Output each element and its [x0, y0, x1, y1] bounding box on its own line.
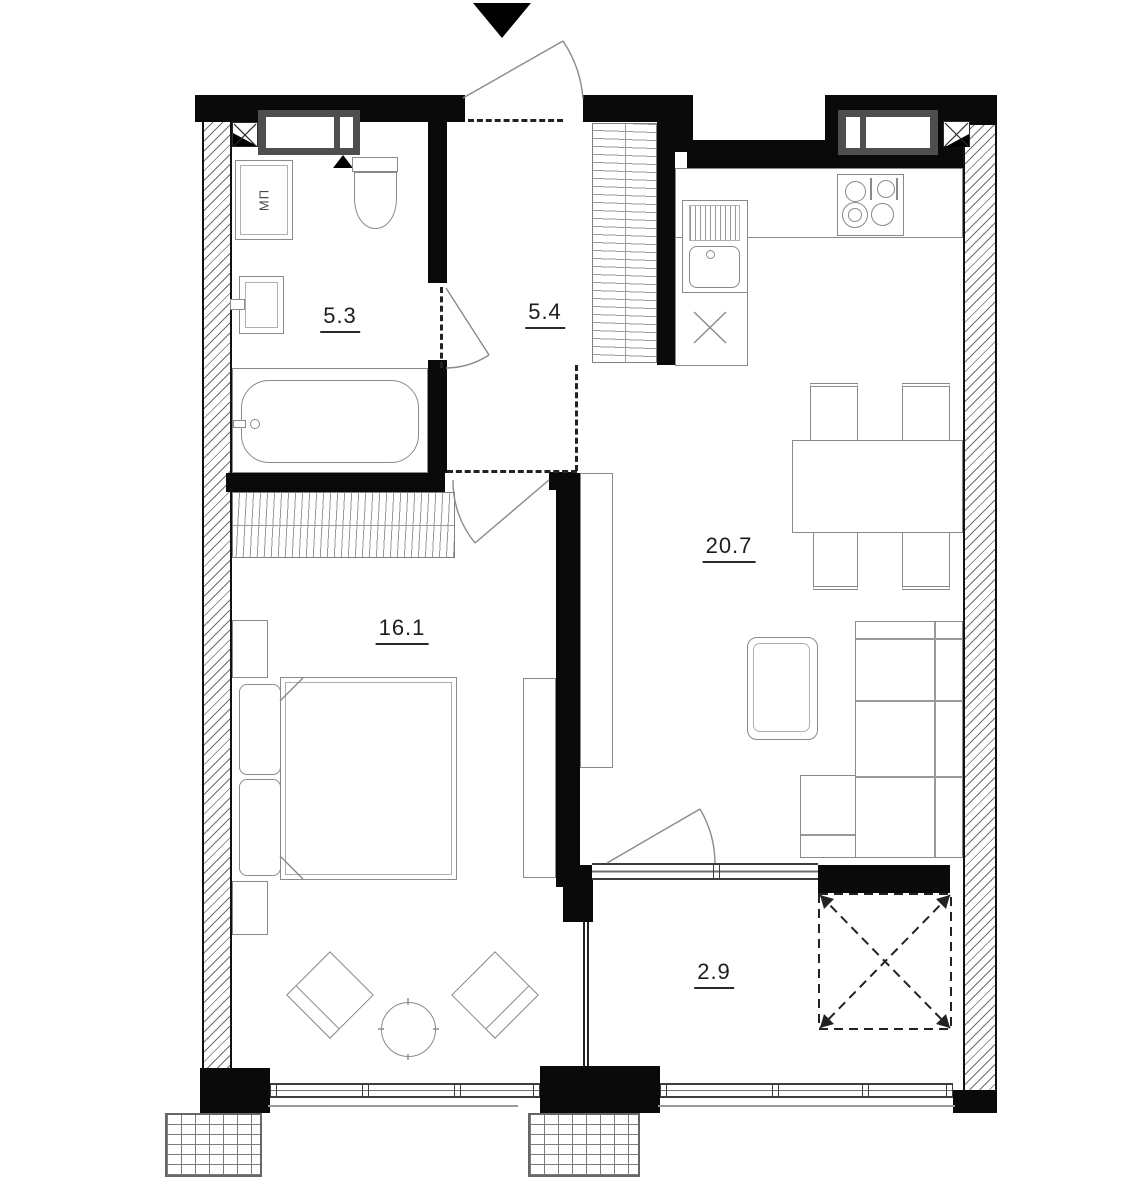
wall-top-entry-right — [583, 95, 658, 122]
bathroom-window-pane-small — [340, 117, 353, 148]
window-mullion — [454, 1085, 461, 1096]
sofa-chaise — [800, 775, 856, 858]
balcony-door — [607, 809, 715, 863]
nightstand-top — [232, 620, 268, 678]
bathroom-window-box — [258, 110, 360, 155]
bedroom-wardrobe — [232, 492, 455, 558]
stove-burner-2-ring — [877, 180, 895, 198]
vent-shaft-arrows — [820, 895, 950, 1028]
sofa-body — [855, 621, 963, 858]
wall-top-recessed — [687, 140, 827, 168]
window-mullion — [362, 1085, 369, 1096]
facade-pier-left — [165, 1113, 262, 1177]
entrance-door — [463, 41, 583, 99]
balcony-door-window — [592, 863, 818, 880]
sofa-cushion-line-1 — [856, 700, 962, 702]
dining-chair-bottom-left — [813, 532, 858, 590]
dining-chair-top-right — [902, 383, 950, 441]
sofa-cushion-line-2 — [856, 776, 962, 778]
room-label-bathroom: 5.3 — [320, 303, 360, 333]
wall-bottom-left-corner — [200, 1068, 270, 1113]
wall-bedroom-balcony-thin — [583, 922, 589, 1066]
window-sill-bedroom — [268, 1105, 518, 1107]
facade-pier-right — [528, 1113, 640, 1177]
room-label-balcony: 2.9 — [694, 959, 734, 989]
window-mullion — [946, 1085, 953, 1096]
bathroom-door-dashed — [440, 287, 443, 368]
bedroom-dresser — [523, 678, 556, 878]
hallway-boundary-dashed-v — [575, 365, 578, 471]
bed — [280, 677, 457, 880]
room-label-hallway: 5.4 — [525, 299, 565, 329]
kitchen-window-pane-large — [866, 117, 930, 148]
wall-bottom-mid — [540, 1066, 660, 1113]
stove-burner-2 — [870, 178, 898, 200]
washing-machine-label: МП — [257, 189, 272, 211]
room-label-bedroom: 16.1 — [376, 615, 429, 645]
bathtub-spout — [233, 420, 246, 428]
stove-burner-4 — [871, 203, 894, 226]
armchair-left-backrest — [286, 985, 340, 1039]
sofa-backrest-line — [934, 622, 936, 857]
wall-bedroom-top — [226, 473, 445, 492]
vent-box-right-fold — [945, 134, 969, 147]
stove-burner-1 — [845, 181, 866, 202]
kitchen-drainboard — [689, 205, 740, 241]
dining-table — [792, 440, 963, 533]
toilet-tank — [352, 157, 398, 172]
kitchen-sink-drain — [706, 250, 715, 259]
wardrobe-rod — [233, 525, 454, 526]
floor-plan: МП — [0, 0, 1143, 1200]
bathtub-faucet — [250, 419, 260, 429]
dining-chair-bottom-right — [902, 532, 950, 590]
round-side-table — [381, 1002, 436, 1057]
bathroom-sink — [239, 276, 284, 334]
toilet-bowl — [354, 172, 397, 229]
bedroom-window — [270, 1083, 540, 1098]
wall-bathroom-right-pillar — [428, 360, 447, 473]
sink-faucet — [230, 299, 245, 310]
pillow-top — [239, 684, 281, 775]
stove-burner-3-inner — [848, 208, 862, 222]
kitchen-window-pane-small — [846, 117, 860, 148]
entrance-arrow-icon — [473, 3, 531, 38]
supply-air-marker-bathroom — [333, 155, 353, 168]
pillow-bottom — [239, 779, 281, 876]
dining-chair-top-left — [810, 383, 858, 441]
window-mullion — [533, 1085, 540, 1096]
window-mullion — [772, 1085, 779, 1096]
window-mullion — [713, 865, 720, 878]
armchair-right — [451, 951, 539, 1039]
room-label-living-kitchen: 20.7 — [703, 533, 756, 563]
tv-stand — [580, 473, 613, 768]
bathroom-window-pane-large — [266, 117, 334, 148]
bathroom-door — [446, 288, 489, 368]
wall-bedroom-living — [556, 473, 580, 887]
coffee-table-inner — [753, 643, 810, 732]
wall-bedroom-balcony-corner — [563, 865, 593, 922]
wall-balcony-top — [818, 865, 950, 893]
window-mullion — [862, 1085, 869, 1096]
vent-shaft — [819, 894, 951, 1029]
armchair-left — [286, 951, 374, 1039]
kitchen-window-box — [838, 110, 938, 155]
vent-box-left-fold — [233, 133, 257, 146]
armchair-right-backrest — [485, 985, 539, 1039]
wall-kitchen-left — [657, 152, 675, 365]
wall-bottom-right-corner — [953, 1090, 997, 1113]
sofa-chaise-line — [801, 834, 855, 836]
stove-burner-3 — [842, 202, 868, 228]
hallway-closet — [592, 123, 657, 363]
entrance-threshold-dashed — [468, 119, 563, 122]
bathtub-inner — [241, 380, 419, 463]
hallway-boundary-dashed-h — [447, 470, 577, 473]
wall-outer-left — [202, 122, 232, 1068]
sofa-armrest-line — [856, 638, 962, 640]
balcony-window — [660, 1083, 953, 1098]
window-sill-balcony — [658, 1105, 955, 1107]
bedroom-door — [453, 480, 549, 543]
washing-machine: МП — [235, 160, 293, 240]
nightstand-bottom — [232, 881, 268, 935]
window-mullion — [270, 1085, 277, 1096]
window-mullion — [660, 1085, 667, 1096]
closet-divider — [625, 124, 626, 362]
wall-outer-right — [963, 125, 997, 1090]
wall-bathroom-right — [428, 97, 447, 283]
